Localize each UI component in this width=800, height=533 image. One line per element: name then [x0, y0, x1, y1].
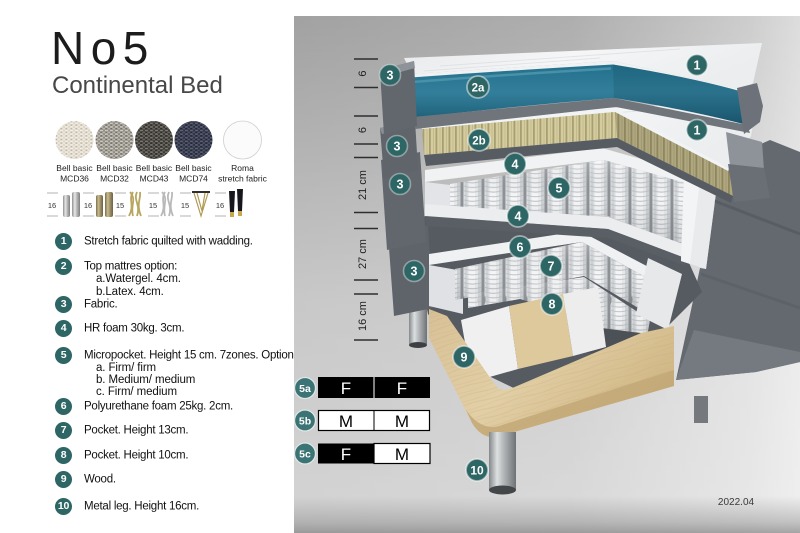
svg-text:3: 3 — [394, 140, 401, 154]
svg-text:2022.04: 2022.04 — [718, 497, 755, 508]
svg-text:3: 3 — [411, 265, 418, 279]
svg-text:4: 4 — [515, 210, 522, 224]
svg-text:M: M — [395, 412, 409, 431]
svg-text:8: 8 — [549, 298, 556, 312]
svg-text:2b: 2b — [472, 136, 485, 148]
svg-text:16 cm: 16 cm — [357, 301, 369, 331]
svg-text:9: 9 — [461, 351, 468, 365]
svg-text:7: 7 — [548, 260, 555, 274]
svg-text:5a: 5a — [299, 383, 311, 395]
svg-text:3: 3 — [387, 69, 394, 83]
svg-text:3: 3 — [397, 178, 404, 192]
svg-text:F: F — [341, 445, 351, 464]
svg-text:M: M — [395, 445, 409, 464]
svg-text:M: M — [339, 412, 353, 431]
svg-text:1: 1 — [694, 124, 701, 138]
svg-text:F: F — [341, 379, 351, 398]
svg-text:5b: 5b — [299, 416, 311, 428]
svg-text:6: 6 — [357, 70, 369, 76]
svg-text:10: 10 — [470, 464, 484, 478]
svg-text:6: 6 — [357, 127, 369, 133]
svg-text:2a: 2a — [472, 83, 485, 95]
svg-text:5: 5 — [556, 182, 563, 196]
svg-text:1: 1 — [694, 59, 701, 73]
svg-text:6: 6 — [517, 241, 524, 255]
svg-text:21 cm: 21 cm — [357, 170, 369, 200]
svg-text:F: F — [397, 379, 407, 398]
svg-text:4: 4 — [512, 158, 519, 172]
svg-text:5c: 5c — [299, 449, 311, 461]
svg-text:27 cm: 27 cm — [357, 239, 369, 269]
